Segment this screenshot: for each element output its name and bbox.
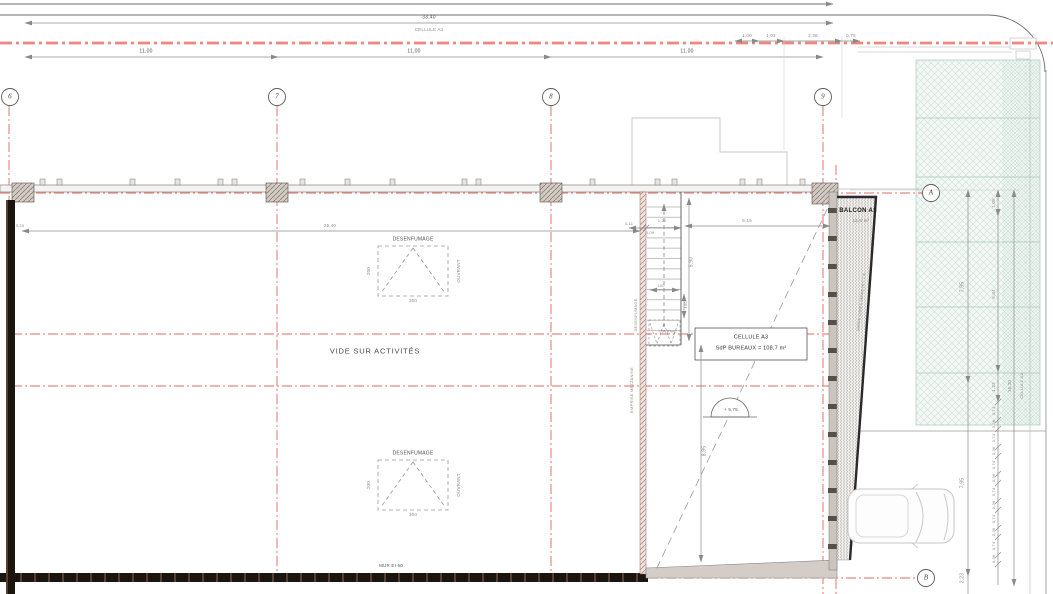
stair-dim-1: 0,11 [625, 222, 633, 226]
dim-overall: 33,40 [422, 16, 436, 21]
dim-6-15: 6,15 [742, 219, 752, 224]
dim-small-3: 2,38 [808, 34, 818, 39]
rdim-644: 6,44 [992, 289, 997, 299]
stair-dim-100v: 100 [684, 301, 688, 308]
rdim-123: 1,23 [992, 382, 997, 392]
vent2-width: 300 [409, 513, 417, 518]
stair-dim-2: 1,20 [658, 219, 667, 223]
vent1-height: 200 [367, 267, 372, 275]
exterior-structure-outline [632, 118, 787, 186]
dim-5-90: 5,90 [690, 257, 695, 268]
vent1-width: 300 [409, 299, 417, 304]
rdim-alt-6: 0,74 [992, 488, 996, 497]
rdim-cellule-label: CELLULE A3 [1020, 373, 1024, 399]
grid-bubble-7: 7 [275, 94, 279, 101]
rdim-alt-0: 0,74 [992, 407, 996, 416]
rdim-alt-5: 0,36 [992, 474, 996, 483]
vent2-title: DESENFUMAGE [393, 452, 434, 457]
dim-bay-3: 11,00 [680, 50, 693, 55]
rdim-795a: 7,95 [961, 282, 966, 293]
cell-a3 [655, 197, 833, 572]
grid-bubble-a: A [929, 190, 933, 197]
cell-label-box [695, 328, 807, 360]
rdim-223: 2,23 [961, 573, 966, 584]
fire-wall-label: MUR EI 60 [379, 564, 403, 569]
axis-cellule-label: CELLULE A3 [415, 28, 444, 33]
grid-bubble-b: B [924, 575, 928, 582]
stair-dim-100h: 100 [657, 284, 664, 288]
rdim-108: 1,08 [992, 198, 997, 208]
vent1-ouvrant: OUVRANT [457, 259, 462, 282]
dim-small-4: 0,75 [846, 34, 856, 39]
vent1-title: DESENFUMAGE [393, 238, 434, 243]
rdim-alt-2: 0,74 [992, 434, 996, 443]
grid-bubble-6: 6 [8, 94, 12, 101]
plan-linework [0, 0, 1053, 594]
stair-desenfumage-label: DESENFUMAGE [634, 298, 638, 331]
rdim-1630: 16,30 [1008, 380, 1013, 392]
rdim-alt-8: 0,74 [992, 515, 996, 524]
mezzanine-wall [640, 192, 646, 574]
balcony-title: BALCON A3 [839, 208, 876, 214]
rdim-alt-4: 0,74 [992, 461, 996, 470]
smoke-vents [378, 246, 448, 510]
west-wall [6, 200, 15, 594]
floor-plan-canvas: 33,40 CELLULE A3 1,00 1,02 2,38 0,75 11,… [0, 0, 1053, 594]
vent2-ouvrant: OUVRANT [457, 473, 462, 496]
north-wall [0, 185, 833, 192]
dim-8-95: 8,95 [703, 446, 708, 457]
rdim-alt-11: 0,36 [992, 555, 996, 564]
level-marker-value: + 5,75 [724, 408, 738, 413]
rdim-alt-3: 0,36 [992, 447, 996, 456]
grid-bubble-8: 8 [549, 94, 553, 101]
van [848, 484, 954, 548]
cell-label-line2: SdP BUREAUX = 108,7 m² [716, 346, 787, 352]
staircase [646, 192, 681, 346]
rdim-alt-9: 0,36 [992, 528, 996, 537]
mezzanine-extent-label: EMPRISE MEZZANINE [630, 367, 634, 413]
balcony-area: 15,6 m² [853, 219, 870, 224]
dim-hall-width: 25,40 [324, 224, 336, 229]
rdim-alt-7: 0,36 [992, 501, 996, 510]
rdim-795b: 7,95 [961, 478, 966, 489]
dim-bay-1: 11,00 [139, 50, 152, 55]
hall-void-label: VIDE SUR ACTIVITÉS [330, 347, 420, 355]
stair-dim-3: 0,09 [646, 231, 655, 235]
stair-ouvrant-label: OUVRANT [659, 330, 678, 334]
grid-bubble-9: 9 [821, 94, 825, 101]
dim-small-1: 1,00 [742, 34, 752, 39]
rdim-alt-1: 0,36 [992, 420, 996, 429]
dim-small-2: 1,02 [766, 34, 776, 39]
facade-posts [40, 179, 805, 185]
rdim-alt-10: 0,74 [992, 542, 996, 551]
vent2-height: 200 [367, 481, 372, 489]
cell-label-line1: CELLULE A3 [734, 335, 768, 341]
dim-wall-thickness: 0,20 [16, 224, 25, 228]
south-east-slab [646, 560, 837, 578]
south-fire-wall [0, 573, 648, 582]
dim-bay-2: 11,00 [407, 50, 420, 55]
road-edges [0, 4, 1045, 72]
